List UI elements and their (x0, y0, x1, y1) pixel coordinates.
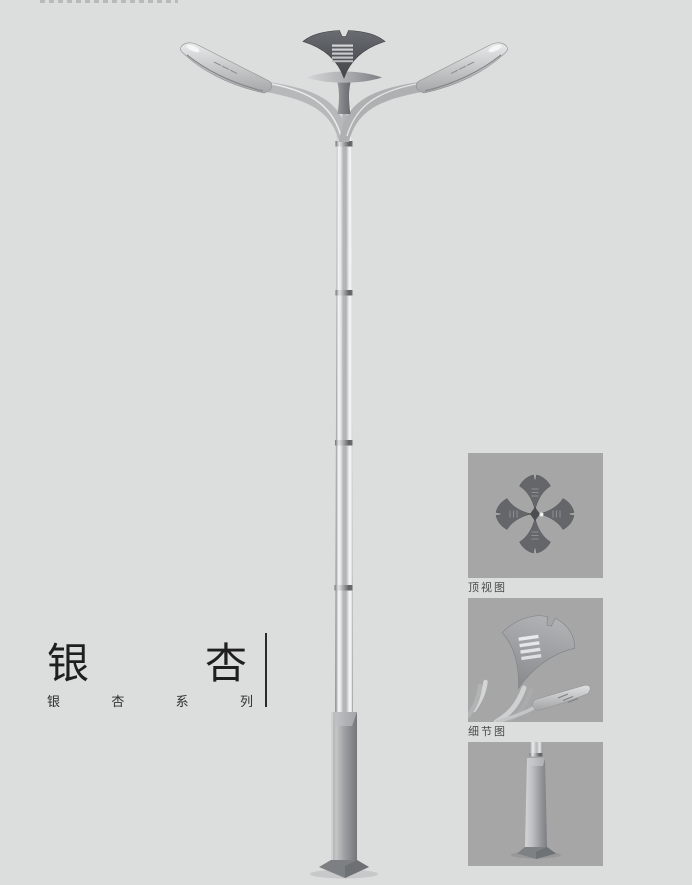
pole-joint (335, 440, 353, 446)
detail-view-label: 细节图 (468, 722, 603, 742)
product-series: 银 杏 系 列 (47, 695, 253, 708)
top-view-label: 顶视图 (468, 578, 603, 598)
pole-joint (335, 585, 353, 591)
detail-panels: 顶视图 (468, 453, 603, 866)
detail-view-image (468, 598, 603, 722)
left-arm (266, 82, 349, 142)
base-view-image (468, 742, 603, 866)
series-char: 列 (240, 695, 253, 708)
left-lamp-head (180, 43, 271, 93)
top-view-image (468, 453, 603, 578)
right-lamp-head (416, 43, 507, 93)
title-char: 银 (47, 643, 89, 685)
series-char: 银 (47, 695, 60, 708)
catalog-page: 银 杏 银 杏 系 列 (0, 0, 692, 885)
right-arm (339, 82, 422, 142)
pole-joint (336, 290, 353, 296)
ginkgo-crown (303, 31, 385, 79)
title-char: 杏 (205, 643, 247, 685)
title-block: 银 杏 银 杏 系 列 (47, 632, 253, 710)
series-char: 系 (176, 695, 189, 708)
series-char: 杏 (111, 695, 124, 708)
pole-base (319, 712, 369, 878)
pole (335, 108, 354, 712)
product-title: 银 杏 (47, 643, 247, 685)
title-divider (265, 633, 267, 707)
